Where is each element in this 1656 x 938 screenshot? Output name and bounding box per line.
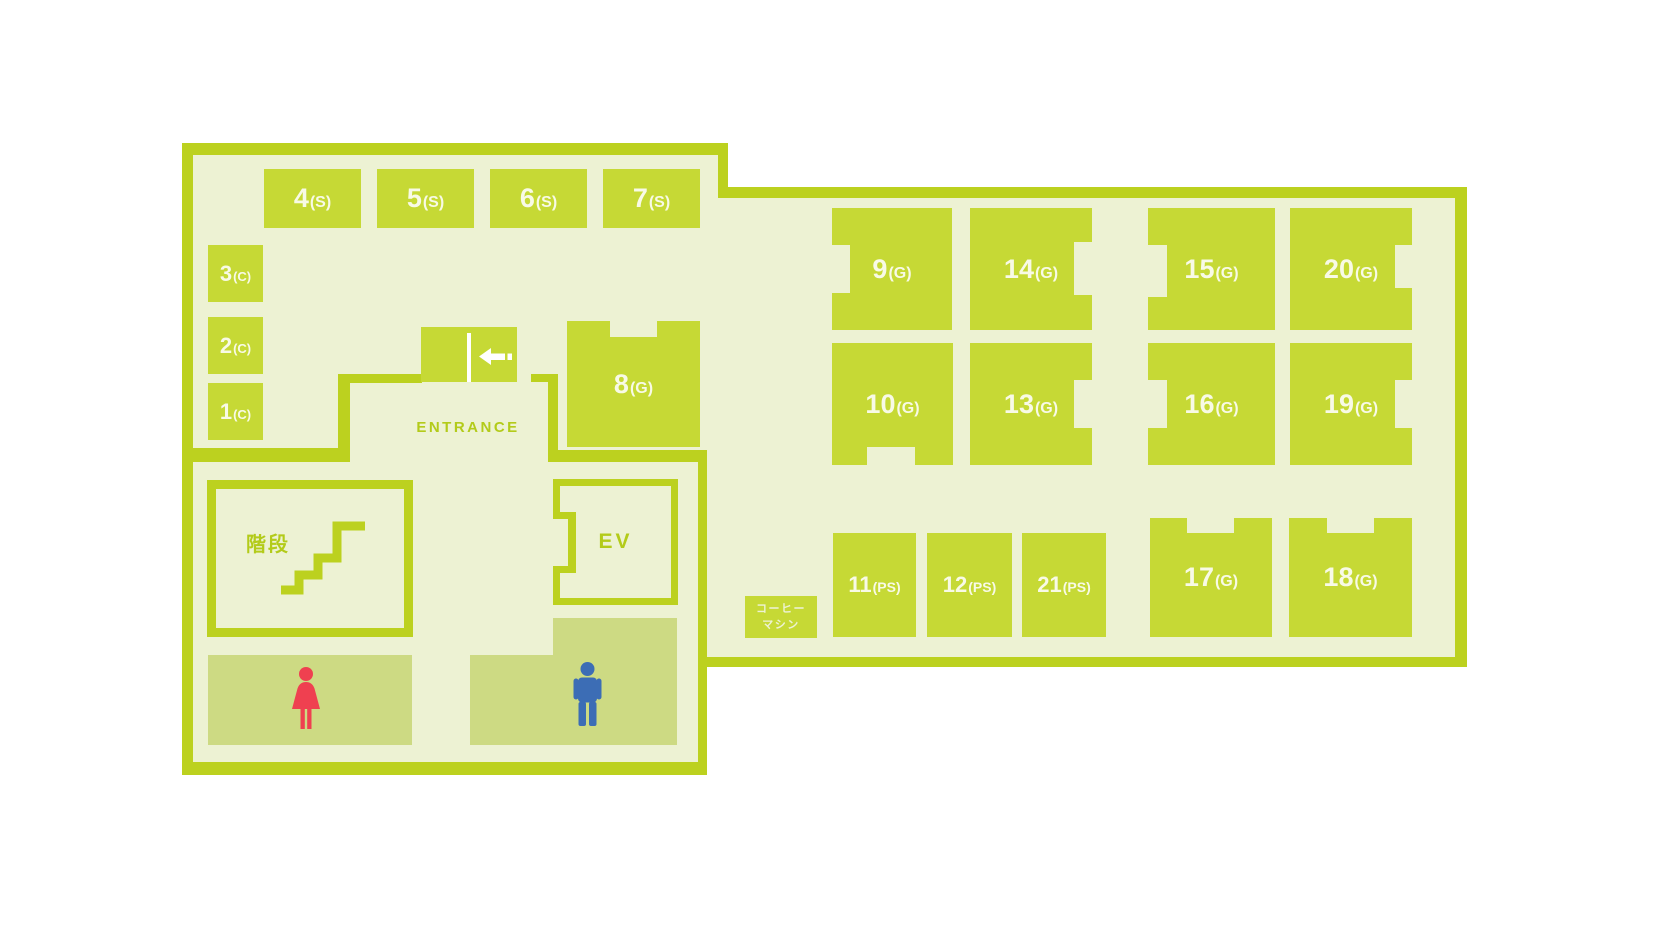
room-1c: 1(C) xyxy=(208,383,263,440)
room-label: 3(C) xyxy=(220,261,251,287)
room-label: 2(C) xyxy=(220,333,251,359)
room-label: 16(G) xyxy=(1184,389,1238,420)
room-label: 6(S) xyxy=(520,183,557,214)
room-6s: 6(S) xyxy=(490,169,587,228)
room-label: 13(G) xyxy=(1004,389,1058,420)
room-7s: 7(S) xyxy=(603,169,700,228)
entrance-label: ENTRANCE xyxy=(388,419,548,436)
coffee-machine: コーヒー マシン xyxy=(745,596,817,638)
room-label: 4(S) xyxy=(294,183,331,214)
room-3c: 3(C) xyxy=(208,245,263,302)
wall-notch xyxy=(1187,518,1234,533)
coffee-machine-label-line1: コーヒー xyxy=(756,601,806,618)
wall-notch xyxy=(1074,242,1092,295)
wall-notch xyxy=(867,447,915,465)
wall-notch xyxy=(1327,518,1374,533)
stairs-icon xyxy=(277,517,369,597)
room-label: 7(S) xyxy=(633,183,670,214)
floor-plan: ENTRANCE 4(S) 5(S) 6(S) 7(S) 3(C) 2(C) 1… xyxy=(0,0,1656,938)
room-14g: 14(G) xyxy=(970,208,1092,330)
room-label: 17(G) xyxy=(1184,562,1238,593)
room-label: 14(G) xyxy=(1004,254,1058,285)
entrance-door xyxy=(421,327,517,382)
room-11ps: 11(PS) xyxy=(833,533,916,637)
room-label: 11(PS) xyxy=(848,572,900,598)
room-18g: 18(G) xyxy=(1289,518,1412,637)
elevator-door-tab-bottom xyxy=(553,566,575,573)
room-21ps: 21(PS) xyxy=(1022,533,1106,637)
room-15g: 15(G) xyxy=(1148,208,1275,330)
room-19g: 19(G) xyxy=(1290,343,1412,465)
female-icon xyxy=(288,667,324,729)
room-12ps: 12(PS) xyxy=(927,533,1012,637)
room-8g: 8(G) xyxy=(567,321,700,447)
room-5s: 5(S) xyxy=(377,169,474,228)
wall-notch xyxy=(1148,245,1167,297)
room-label: 15(G) xyxy=(1184,254,1238,285)
mens-restroom-upper xyxy=(553,618,677,655)
wall-notch xyxy=(1395,245,1412,288)
room-10g: 10(G) xyxy=(832,343,953,465)
room-label: 12(PS) xyxy=(943,572,996,598)
room-2c: 2(C) xyxy=(208,317,263,374)
wall-notch xyxy=(1148,380,1167,428)
wall-notch xyxy=(610,321,657,337)
male-icon xyxy=(570,662,605,727)
room-16g: 16(G) xyxy=(1148,343,1275,465)
room-label: 21(PS) xyxy=(1037,572,1090,598)
room-9g: 9(G) xyxy=(832,208,952,330)
room-label: 1(C) xyxy=(220,399,251,425)
room-13g: 13(G) xyxy=(970,343,1092,465)
corridor-wall-right xyxy=(548,374,558,462)
entrance-wall-left xyxy=(338,374,422,383)
room-label: 5(S) xyxy=(407,183,444,214)
connector-wall xyxy=(558,450,707,462)
door-arrow-icon xyxy=(479,348,512,365)
wall-notch xyxy=(1395,380,1412,428)
room-4s: 4(S) xyxy=(264,169,361,228)
door-line xyxy=(467,333,471,382)
room-label: 19(G) xyxy=(1324,389,1378,420)
room-label: 18(G) xyxy=(1323,562,1377,593)
room-17g: 17(G) xyxy=(1150,518,1272,637)
wall-notch xyxy=(832,245,850,293)
room-label: 10(G) xyxy=(865,389,919,420)
elevator-door-bar xyxy=(568,512,576,573)
elevator-label: EV xyxy=(598,530,632,554)
lobby-top-wall xyxy=(193,448,350,462)
elevator-door-gap xyxy=(552,512,561,573)
room-label: 20(G) xyxy=(1324,254,1378,285)
room-20g: 20(G) xyxy=(1290,208,1412,330)
coffee-machine-label-line2: マシン xyxy=(762,617,800,634)
room-label: 8(G) xyxy=(614,369,653,400)
wall-notch xyxy=(1074,380,1092,428)
room-label: 9(G) xyxy=(872,254,911,285)
